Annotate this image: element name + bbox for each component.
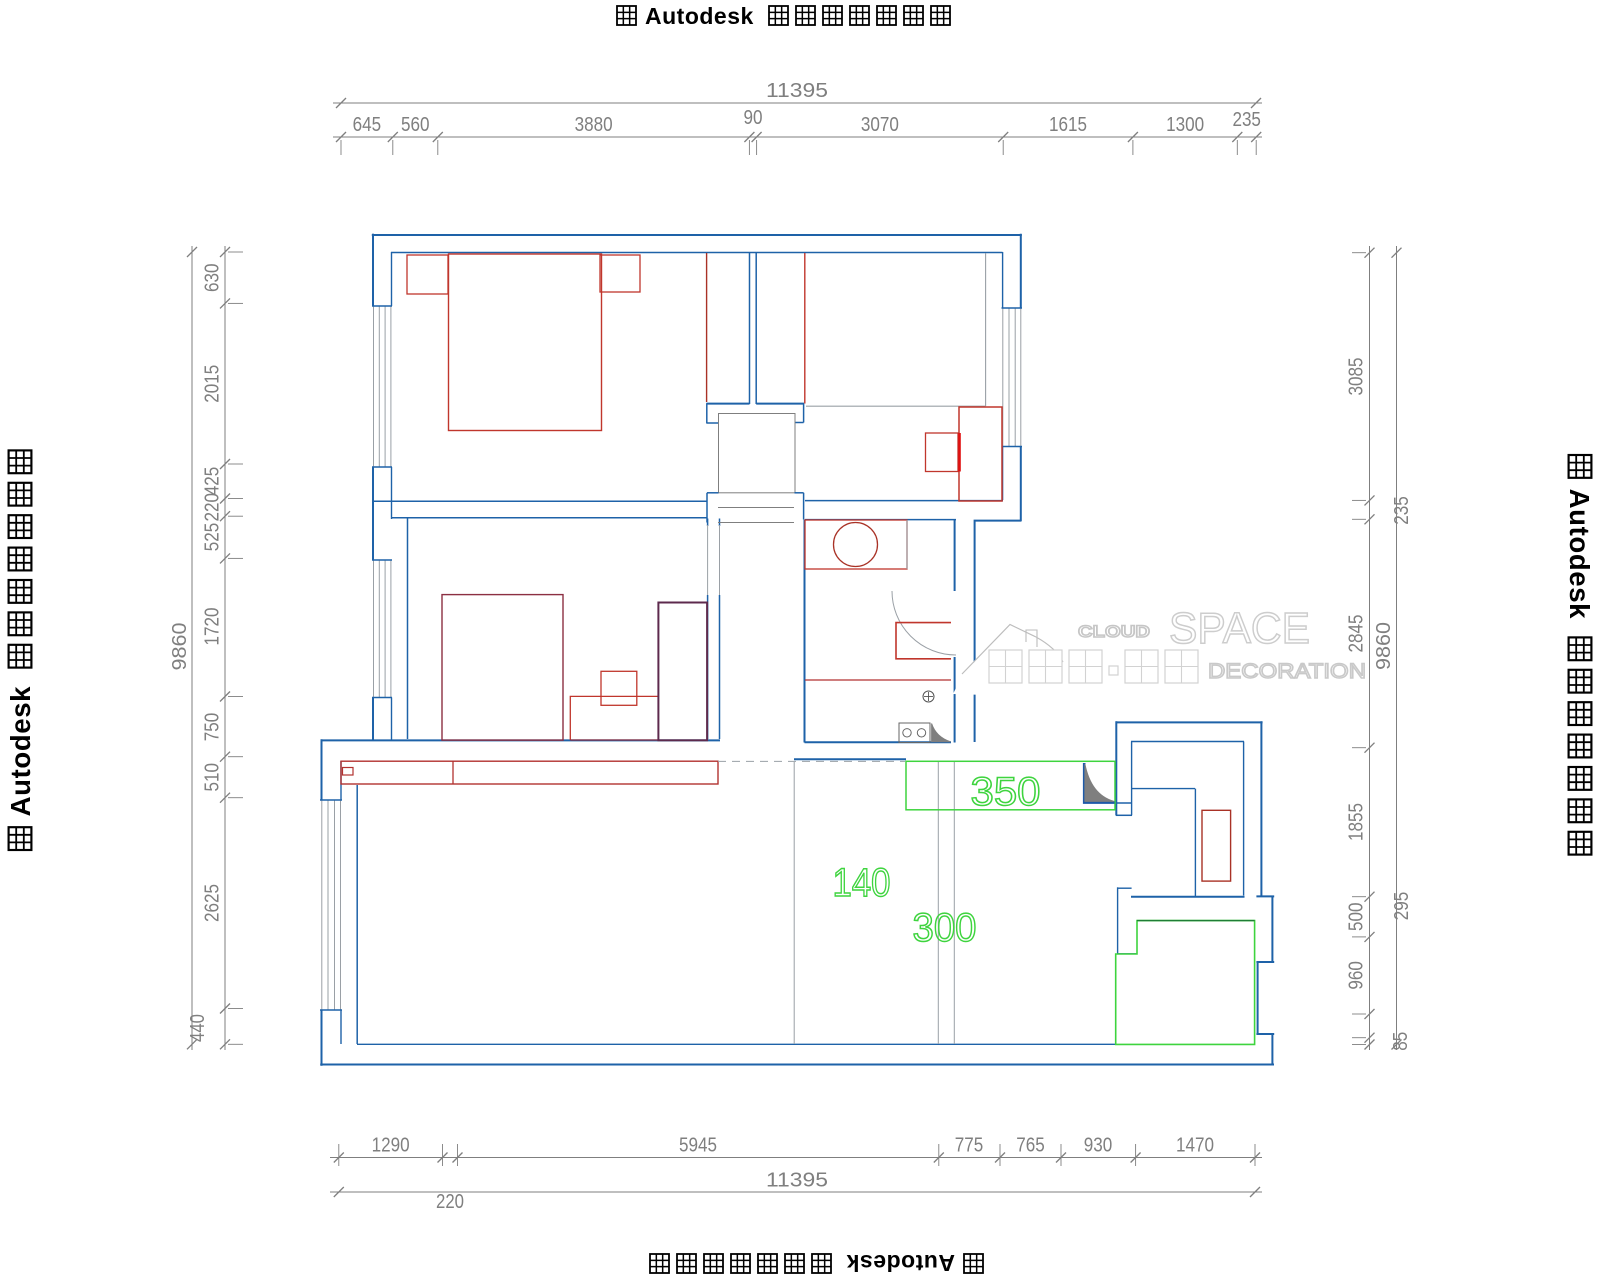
- svg-text:Autodesk: Autodesk: [5, 686, 36, 817]
- svg-text:765: 765: [1016, 1135, 1045, 1157]
- svg-text:3880: 3880: [575, 114, 613, 136]
- svg-text:3085: 3085: [1346, 358, 1368, 396]
- svg-text:1855: 1855: [1346, 803, 1368, 841]
- svg-text:1300: 1300: [1166, 114, 1204, 136]
- svg-text:1720: 1720: [202, 608, 224, 646]
- svg-text:750: 750: [202, 713, 224, 742]
- svg-text:Autodesk: Autodesk: [645, 3, 754, 29]
- svg-text:220: 220: [202, 493, 224, 522]
- svg-text:3070: 3070: [861, 114, 899, 136]
- svg-text:11395: 11395: [766, 1170, 828, 1192]
- svg-text:235: 235: [1391, 496, 1413, 525]
- svg-text:140: 140: [833, 861, 891, 905]
- svg-text:440: 440: [187, 1014, 209, 1042]
- svg-text:90: 90: [744, 107, 763, 129]
- svg-text:5945: 5945: [679, 1135, 717, 1157]
- svg-text:425: 425: [202, 467, 224, 496]
- svg-text:930: 930: [1084, 1135, 1113, 1157]
- svg-text:630: 630: [202, 263, 224, 292]
- svg-text:9860: 9860: [1373, 622, 1395, 670]
- svg-text:350: 350: [971, 770, 1041, 814]
- svg-text:CLOUD: CLOUD: [1078, 622, 1150, 641]
- svg-text:2015: 2015: [202, 365, 224, 403]
- svg-text:1290: 1290: [372, 1135, 410, 1157]
- svg-text:220: 220: [436, 1191, 464, 1213]
- svg-text:295: 295: [1391, 892, 1413, 921]
- svg-text:1470: 1470: [1176, 1135, 1214, 1157]
- svg-text:1615: 1615: [1049, 114, 1087, 136]
- svg-text:960: 960: [1346, 961, 1368, 990]
- svg-text:560: 560: [401, 114, 430, 136]
- svg-text:DECORATION: DECORATION: [1208, 660, 1366, 683]
- svg-text:775: 775: [955, 1135, 984, 1157]
- svg-text:500: 500: [1346, 903, 1368, 932]
- svg-text:645: 645: [353, 114, 382, 136]
- svg-text:11395: 11395: [766, 80, 828, 102]
- svg-text:Autodesk: Autodesk: [1564, 489, 1595, 620]
- svg-text:2845: 2845: [1346, 615, 1368, 653]
- svg-text:525: 525: [202, 523, 224, 552]
- svg-text:SPACE: SPACE: [1169, 604, 1310, 653]
- svg-text:9860: 9860: [169, 623, 191, 671]
- svg-text:2625: 2625: [202, 884, 224, 922]
- svg-text:300: 300: [913, 906, 977, 950]
- svg-text:235: 235: [1232, 109, 1261, 131]
- svg-text:510: 510: [202, 763, 224, 792]
- svg-text:Autodesk: Autodesk: [846, 1250, 955, 1276]
